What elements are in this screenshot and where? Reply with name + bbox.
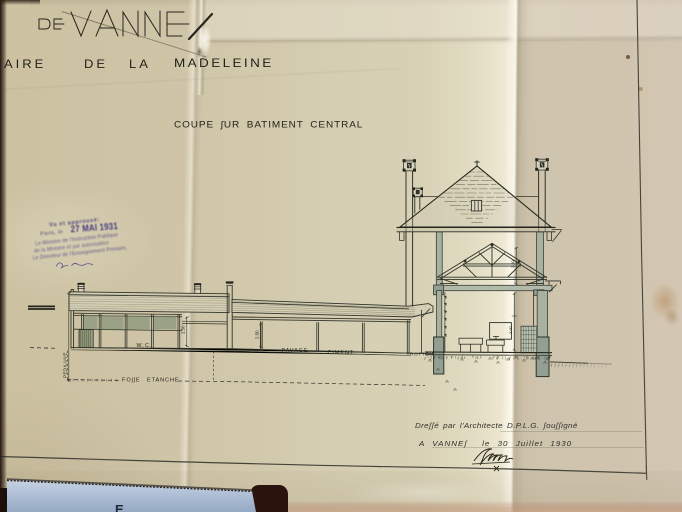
svg-text:3.50: 3.50 — [510, 259, 515, 268]
svg-text:FOʃʃE ETANCHE: FOʃʃE ETANCHE — [122, 378, 180, 384]
svg-text:PEDILUVE: PEDILUVE — [62, 352, 67, 378]
svg-text:PAVAGE: PAVAGE — [282, 348, 309, 354]
svg-text:2.50: 2.50 — [255, 330, 260, 339]
svg-text:CIMENT: CIMENT — [328, 350, 355, 356]
svg-text:2.50: 2.50 — [181, 325, 186, 334]
svg-text:3.00: 3.00 — [508, 325, 513, 334]
